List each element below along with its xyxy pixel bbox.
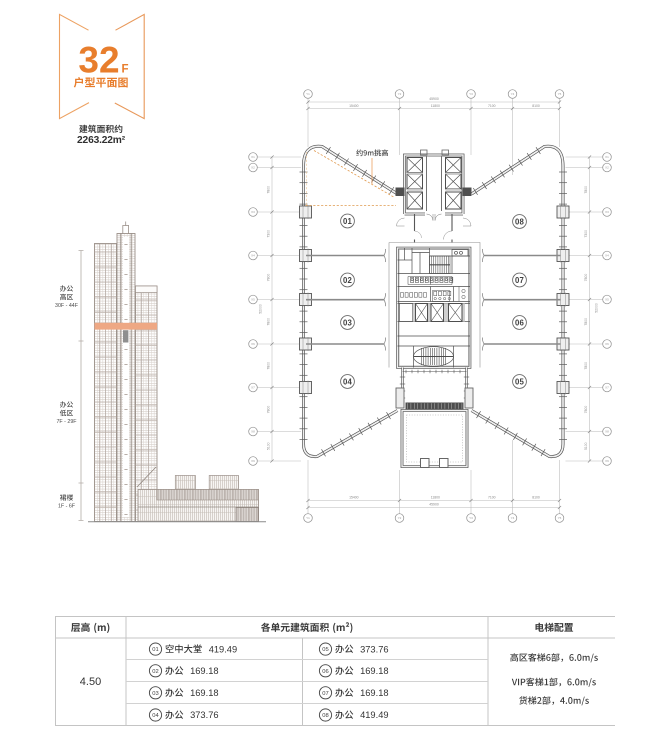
- svg-text:45900: 45900: [429, 503, 439, 507]
- svg-text:06: 06: [515, 318, 525, 327]
- svg-text:169.18: 169.18: [190, 666, 218, 676]
- svg-text:7800: 7800: [584, 274, 588, 282]
- svg-text:X9: X9: [605, 459, 609, 463]
- svg-text:5100: 5100: [267, 442, 271, 450]
- svg-text:7300: 7300: [584, 230, 588, 238]
- svg-text:07: 07: [322, 691, 328, 697]
- svg-text:05: 05: [322, 647, 328, 653]
- svg-text:X2: X2: [605, 166, 609, 170]
- svg-text:X7: X7: [605, 386, 609, 390]
- svg-text:Y1: Y1: [306, 92, 310, 96]
- svg-text:X6: X6: [605, 342, 609, 346]
- svg-text:373.76: 373.76: [360, 644, 388, 654]
- svg-text:X9: X9: [251, 459, 255, 463]
- svg-text:Y2: Y2: [398, 92, 402, 96]
- svg-text:169.18: 169.18: [360, 688, 388, 698]
- svg-text:08: 08: [515, 217, 525, 226]
- svg-text:X3: X3: [605, 210, 609, 214]
- svg-text:15400: 15400: [349, 496, 359, 500]
- svg-text:45900: 45900: [429, 97, 439, 101]
- svg-text:169.18: 169.18: [360, 666, 388, 676]
- svg-text:419.49: 419.49: [360, 710, 388, 720]
- svg-text:02: 02: [343, 276, 353, 285]
- svg-text:01: 01: [343, 217, 353, 226]
- svg-text:03: 03: [343, 318, 353, 327]
- svg-text:8100: 8100: [532, 496, 540, 500]
- svg-text:X5: X5: [605, 298, 609, 302]
- svg-text:X5: X5: [251, 298, 255, 302]
- svg-text:15400: 15400: [349, 104, 359, 108]
- svg-text:8100: 8100: [532, 104, 540, 108]
- svg-text:373.76: 373.76: [190, 710, 218, 720]
- svg-text:06: 06: [322, 669, 328, 675]
- svg-text:X8: X8: [251, 430, 255, 434]
- svg-text:7800: 7800: [267, 186, 271, 194]
- svg-text:07: 07: [515, 276, 524, 285]
- svg-text:169.18: 169.18: [190, 688, 218, 698]
- svg-text:7800: 7800: [267, 406, 271, 414]
- svg-text:X8: X8: [605, 430, 609, 434]
- svg-text:08: 08: [322, 713, 328, 719]
- svg-text:Y5: Y5: [558, 92, 562, 96]
- svg-text:Y5: Y5: [558, 516, 562, 520]
- svg-text:11800: 11800: [431, 496, 440, 500]
- svg-text:Y4: Y4: [511, 92, 515, 96]
- svg-text:X1: X1: [251, 155, 255, 159]
- svg-text:X4: X4: [251, 254, 255, 258]
- svg-text:04: 04: [152, 713, 159, 719]
- svg-text:2263.22m²: 2263.22m²: [77, 135, 126, 146]
- svg-text:7800: 7800: [267, 362, 271, 370]
- svg-text:Y2: Y2: [398, 516, 402, 520]
- svg-text:52000: 52000: [259, 304, 263, 314]
- svg-text:52000: 52000: [595, 303, 599, 313]
- svg-text:7F - 29F: 7F - 29F: [56, 419, 77, 425]
- svg-text:X4: X4: [605, 254, 609, 258]
- svg-text:X6: X6: [251, 342, 255, 346]
- svg-text:F: F: [121, 64, 128, 76]
- svg-text:32: 32: [78, 40, 119, 81]
- svg-text:Y3: Y3: [469, 516, 473, 520]
- svg-text:X2: X2: [251, 166, 255, 170]
- svg-text:05: 05: [515, 377, 525, 386]
- svg-text:7100: 7100: [488, 496, 496, 500]
- svg-text:419.49: 419.49: [209, 644, 237, 654]
- svg-text:1F - 6F: 1F - 6F: [58, 504, 76, 510]
- svg-text:04: 04: [343, 377, 353, 386]
- svg-text:5100: 5100: [584, 442, 588, 450]
- svg-text:7800: 7800: [584, 318, 588, 326]
- svg-text:01: 01: [152, 647, 158, 653]
- svg-text:Y3: Y3: [469, 92, 473, 96]
- svg-text:7100: 7100: [488, 104, 496, 108]
- svg-text:7300: 7300: [267, 230, 271, 238]
- svg-text:Y1: Y1: [306, 516, 310, 520]
- svg-text:7800: 7800: [267, 274, 271, 282]
- svg-text:7800: 7800: [584, 362, 588, 370]
- svg-text:Y4: Y4: [511, 516, 515, 520]
- svg-text:7800: 7800: [267, 318, 271, 326]
- svg-text:30F - 44F: 30F - 44F: [55, 303, 79, 309]
- svg-text:02: 02: [152, 669, 158, 675]
- svg-text:7800: 7800: [584, 406, 588, 414]
- svg-text:11800: 11800: [431, 104, 440, 108]
- svg-text:4.50: 4.50: [80, 676, 101, 688]
- svg-text:X7: X7: [251, 386, 255, 390]
- svg-text:X3: X3: [251, 210, 255, 214]
- svg-text:03: 03: [152, 691, 158, 697]
- svg-text:7800: 7800: [584, 186, 588, 194]
- svg-text:X1: X1: [605, 155, 609, 159]
